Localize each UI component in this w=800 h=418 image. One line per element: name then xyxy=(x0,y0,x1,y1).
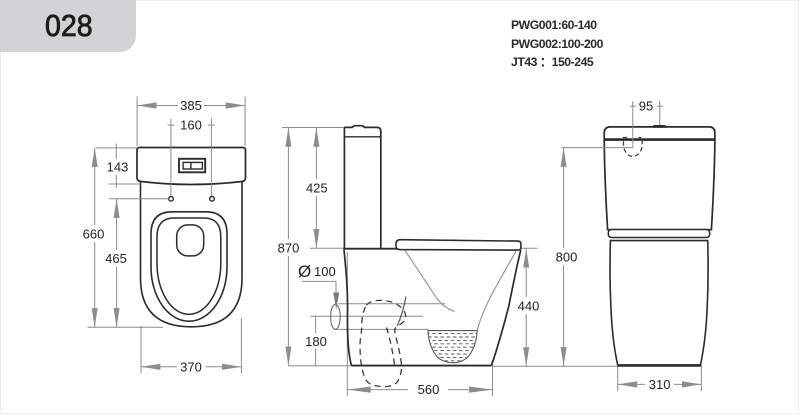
svg-text:660: 660 xyxy=(83,227,105,242)
svg-text:180: 180 xyxy=(305,334,327,349)
svg-text:425: 425 xyxy=(306,180,328,195)
svg-text:370: 370 xyxy=(180,359,202,374)
svg-text:385: 385 xyxy=(180,98,202,113)
svg-text:100: 100 xyxy=(314,264,336,279)
svg-text:870: 870 xyxy=(278,240,300,255)
svg-text:800: 800 xyxy=(556,250,578,265)
svg-text:465: 465 xyxy=(105,251,127,266)
svg-text:310: 310 xyxy=(649,377,671,392)
svg-text:160: 160 xyxy=(180,118,202,133)
svg-text:560: 560 xyxy=(418,382,440,397)
svg-text:Ø: Ø xyxy=(298,262,311,281)
svg-text:95: 95 xyxy=(639,99,653,114)
svg-text:440: 440 xyxy=(518,298,540,313)
svg-text:143: 143 xyxy=(107,160,129,175)
